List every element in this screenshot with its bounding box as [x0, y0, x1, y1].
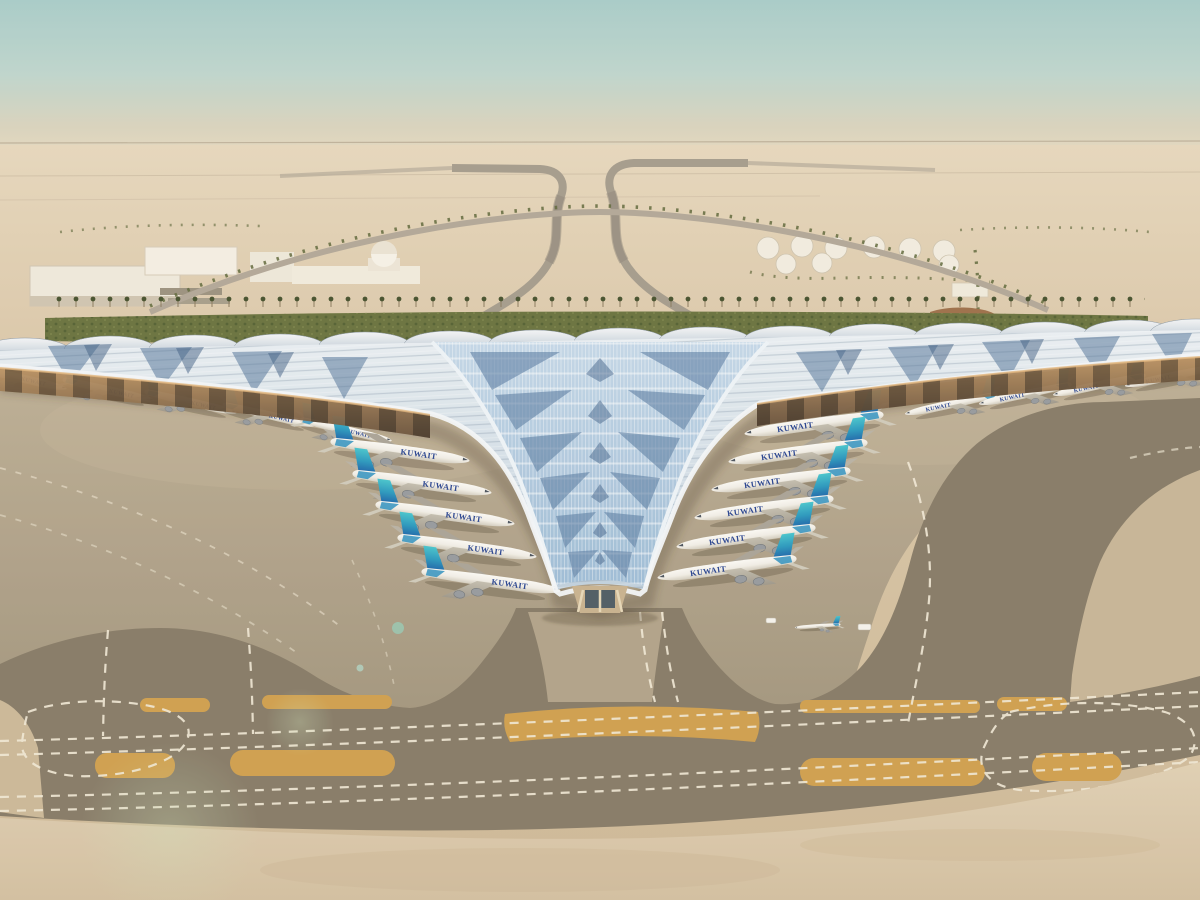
haze-overlay [0, 0, 1200, 900]
scene-rendering: KUWAIT KUWAIT KUWAIT KUWAIT KUWAIT KUWAI… [0, 0, 1200, 900]
airport-rendering-canvas: KUWAIT KUWAIT KUWAIT KUWAIT KUWAIT KUWAI… [0, 0, 1200, 900]
